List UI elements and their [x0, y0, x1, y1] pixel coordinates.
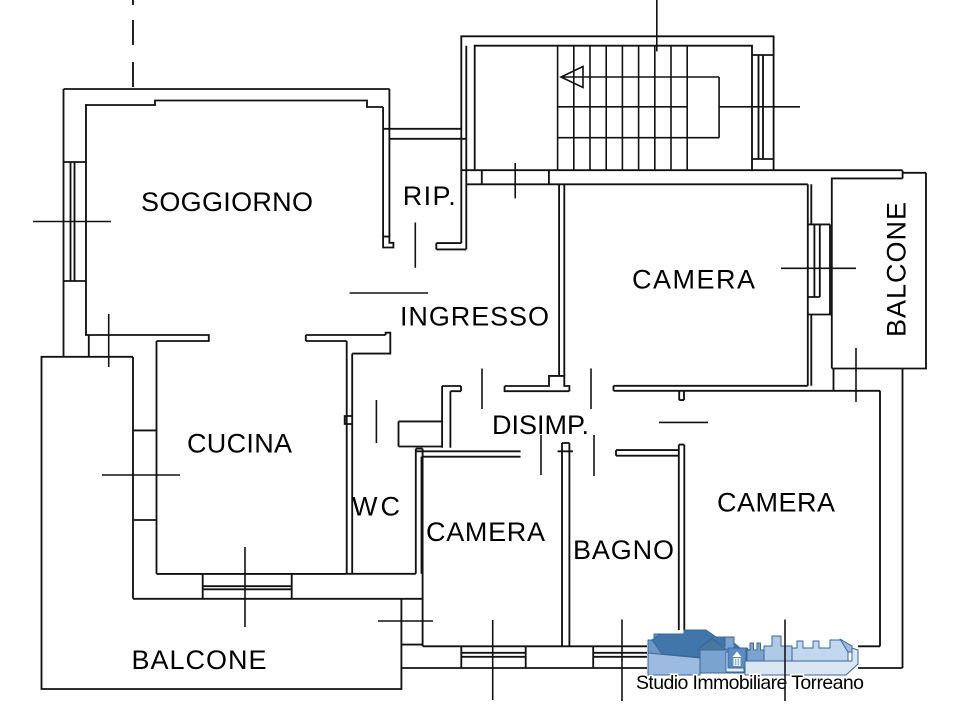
svg-text:CUCINA: CUCINA: [187, 429, 292, 459]
svg-text:CAMERA: CAMERA: [632, 265, 755, 295]
svg-text:BAGNO: BAGNO: [573, 535, 674, 565]
svg-text:BALCONE: BALCONE: [132, 645, 267, 675]
svg-text:SOGGIORNO: SOGGIORNO: [141, 187, 313, 217]
svg-text:RIP.: RIP.: [403, 181, 456, 211]
svg-text:WC: WC: [352, 492, 400, 522]
svg-text:CAMERA: CAMERA: [426, 517, 545, 547]
svg-text:CAMERA: CAMERA: [717, 488, 835, 518]
svg-text:DISIMP.: DISIMP.: [492, 410, 589, 440]
svg-text:INGRESSO: INGRESSO: [400, 302, 549, 332]
svg-text:BALCONE: BALCONE: [881, 202, 911, 337]
svg-text:Studio Immobiliare Torreano: Studio Immobiliare Torreano: [636, 672, 864, 694]
